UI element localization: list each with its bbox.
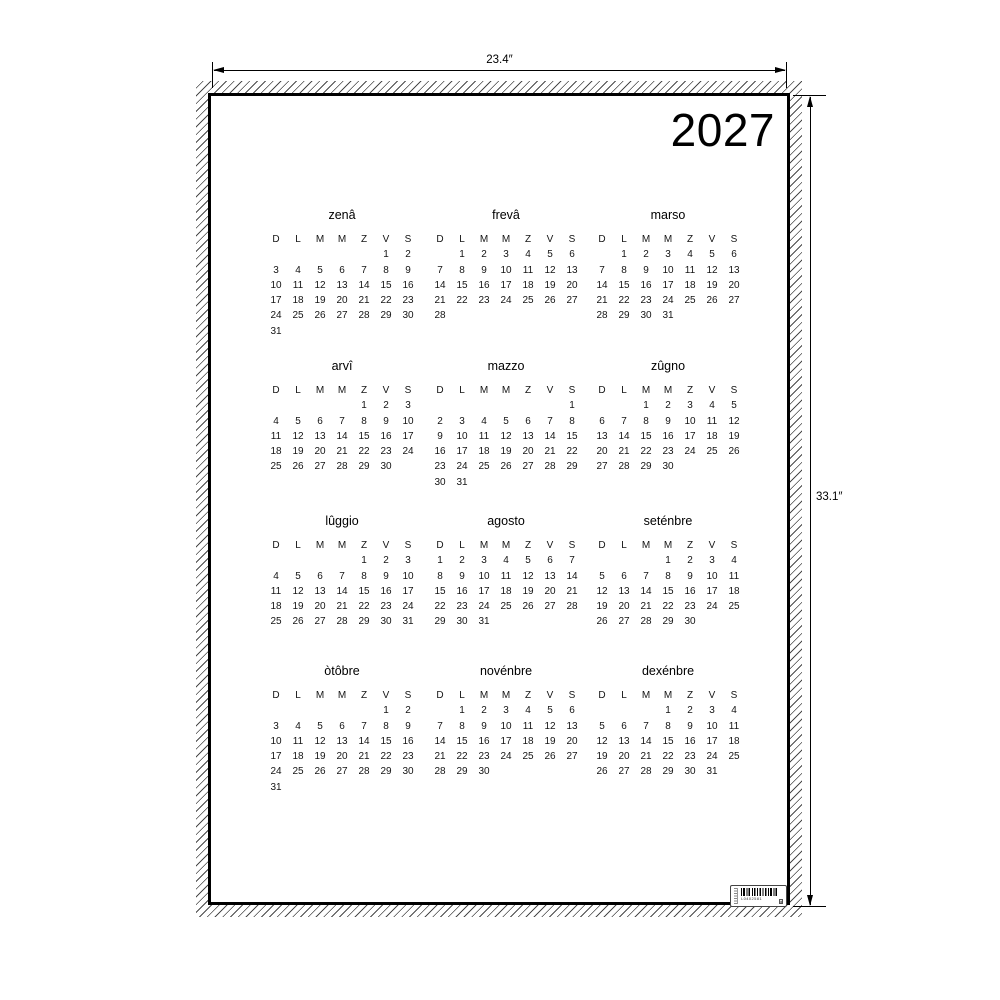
day-cell: 31 bbox=[451, 475, 473, 490]
day-cell: 11 bbox=[679, 263, 701, 278]
day-cell: 24 bbox=[701, 599, 723, 614]
day-cell: 15 bbox=[375, 278, 397, 293]
day-cell: 21 bbox=[429, 293, 451, 308]
weekday-header: Z bbox=[679, 538, 701, 553]
weekday-header: V bbox=[701, 688, 723, 703]
day-cell: 15 bbox=[375, 734, 397, 749]
empty-day-cell bbox=[473, 398, 495, 413]
weekday-header: M bbox=[657, 538, 679, 553]
day-cell: 12 bbox=[309, 734, 331, 749]
day-cell: 31 bbox=[701, 764, 723, 779]
weekday-header: D bbox=[429, 538, 451, 553]
day-cell: 7 bbox=[353, 263, 375, 278]
day-cell: 26 bbox=[287, 459, 309, 474]
day-cell: 23 bbox=[429, 459, 451, 474]
empty-day-cell bbox=[331, 553, 353, 568]
day-cell: 6 bbox=[539, 553, 561, 568]
month-grid: DLMMZVS123456789101112131415161718192021… bbox=[591, 538, 745, 630]
day-cell: 9 bbox=[429, 429, 451, 444]
weekday-header: Z bbox=[517, 688, 539, 703]
weekday-header: Z bbox=[679, 688, 701, 703]
day-cell: 20 bbox=[561, 734, 583, 749]
day-cell: 18 bbox=[495, 584, 517, 599]
day-cell: 10 bbox=[701, 569, 723, 584]
weekday-header: S bbox=[397, 538, 419, 553]
day-cell: 19 bbox=[723, 429, 745, 444]
barcode-stripes-icon bbox=[741, 888, 779, 896]
day-cell: 16 bbox=[679, 734, 701, 749]
month-block-9: seténbreDLMMZVS1234567891011121314151617… bbox=[591, 514, 745, 630]
day-cell: 11 bbox=[517, 263, 539, 278]
day-cell: 6 bbox=[613, 719, 635, 734]
day-cell: 9 bbox=[657, 414, 679, 429]
weekday-header: L bbox=[287, 538, 309, 553]
day-cell: 3 bbox=[701, 703, 723, 718]
day-cell: 9 bbox=[397, 263, 419, 278]
day-cell: 4 bbox=[287, 263, 309, 278]
weekday-header: M bbox=[473, 688, 495, 703]
day-cell: 30 bbox=[635, 308, 657, 323]
empty-day-cell bbox=[309, 703, 331, 718]
day-cell: 10 bbox=[397, 569, 419, 584]
day-cell: 2 bbox=[635, 247, 657, 262]
day-cell: 24 bbox=[265, 764, 287, 779]
day-cell: 5 bbox=[517, 553, 539, 568]
day-cell: 22 bbox=[657, 599, 679, 614]
day-cell: 18 bbox=[679, 278, 701, 293]
month-title: frevâ bbox=[429, 208, 583, 222]
day-cell: 24 bbox=[451, 459, 473, 474]
day-cell: 17 bbox=[397, 429, 419, 444]
day-cell: 19 bbox=[591, 749, 613, 764]
empty-day-cell bbox=[287, 247, 309, 262]
day-cell: 20 bbox=[591, 444, 613, 459]
month-title: lûggio bbox=[265, 514, 419, 528]
day-cell: 2 bbox=[375, 553, 397, 568]
day-cell: 30 bbox=[397, 764, 419, 779]
day-cell: 26 bbox=[539, 293, 561, 308]
month-title: agosto bbox=[429, 514, 583, 528]
day-cell: 9 bbox=[679, 569, 701, 584]
day-cell: 10 bbox=[679, 414, 701, 429]
day-cell: 26 bbox=[309, 764, 331, 779]
day-cell: 20 bbox=[309, 599, 331, 614]
month-grid: DLMMZVS123456789101112131415161718192021… bbox=[265, 383, 419, 475]
day-cell: 15 bbox=[657, 584, 679, 599]
day-cell: 14 bbox=[353, 734, 375, 749]
day-cell: 22 bbox=[451, 293, 473, 308]
day-cell: 17 bbox=[473, 584, 495, 599]
day-cell: 1 bbox=[353, 553, 375, 568]
weekday-header: D bbox=[429, 232, 451, 247]
day-cell: 8 bbox=[451, 719, 473, 734]
day-cell: 7 bbox=[353, 719, 375, 734]
day-cell: 11 bbox=[287, 734, 309, 749]
day-cell: 19 bbox=[517, 584, 539, 599]
dim-arrow-right-icon bbox=[775, 67, 786, 73]
day-cell: 30 bbox=[451, 614, 473, 629]
weekday-header: M bbox=[495, 383, 517, 398]
weekday-header: V bbox=[539, 232, 561, 247]
day-cell: 14 bbox=[591, 278, 613, 293]
day-cell: 2 bbox=[375, 398, 397, 413]
day-cell: 22 bbox=[561, 444, 583, 459]
width-dimension-label: 23.4″ bbox=[213, 54, 786, 66]
day-cell: 5 bbox=[539, 247, 561, 262]
day-cell: 5 bbox=[539, 703, 561, 718]
day-cell: 16 bbox=[397, 278, 419, 293]
day-cell: 18 bbox=[723, 734, 745, 749]
empty-day-cell bbox=[451, 398, 473, 413]
day-cell: 2 bbox=[679, 553, 701, 568]
day-cell: 18 bbox=[287, 293, 309, 308]
day-cell: 12 bbox=[287, 584, 309, 599]
day-cell: 15 bbox=[635, 429, 657, 444]
weekday-header: V bbox=[539, 538, 561, 553]
day-cell: 9 bbox=[375, 569, 397, 584]
day-cell: 22 bbox=[451, 749, 473, 764]
day-cell: 3 bbox=[495, 247, 517, 262]
empty-day-cell bbox=[353, 247, 375, 262]
empty-day-cell bbox=[309, 553, 331, 568]
empty-day-cell bbox=[613, 703, 635, 718]
weekday-header: Z bbox=[353, 383, 375, 398]
day-cell: 27 bbox=[517, 459, 539, 474]
day-cell: 4 bbox=[679, 247, 701, 262]
month-grid: DLMMZVS123456789101112131415161718192021… bbox=[429, 538, 583, 630]
day-cell: 15 bbox=[353, 429, 375, 444]
weekday-header: S bbox=[561, 688, 583, 703]
weekday-header: V bbox=[701, 232, 723, 247]
day-cell: 6 bbox=[517, 414, 539, 429]
day-cell: 28 bbox=[429, 764, 451, 779]
month-block-10: òtôbreDLMMZVS123456789101112131415161718… bbox=[265, 664, 419, 795]
day-cell: 12 bbox=[517, 569, 539, 584]
weekday-header: M bbox=[495, 538, 517, 553]
weekday-header: S bbox=[723, 538, 745, 553]
day-cell: 18 bbox=[517, 734, 539, 749]
weekday-header: S bbox=[723, 688, 745, 703]
day-cell: 24 bbox=[265, 308, 287, 323]
day-cell: 13 bbox=[331, 278, 353, 293]
weekday-header: S bbox=[723, 383, 745, 398]
day-cell: 17 bbox=[701, 734, 723, 749]
day-cell: 14 bbox=[331, 429, 353, 444]
day-cell: 27 bbox=[309, 459, 331, 474]
day-cell: 6 bbox=[723, 247, 745, 262]
day-cell: 29 bbox=[657, 764, 679, 779]
barcode-code-text: L0402581 bbox=[741, 896, 779, 901]
weekday-header: L bbox=[613, 383, 635, 398]
day-cell: 15 bbox=[451, 278, 473, 293]
weekday-header: M bbox=[635, 232, 657, 247]
empty-day-cell bbox=[613, 553, 635, 568]
empty-day-cell bbox=[265, 553, 287, 568]
day-cell: 23 bbox=[473, 749, 495, 764]
day-cell: 29 bbox=[375, 308, 397, 323]
empty-day-cell bbox=[591, 553, 613, 568]
empty-day-cell bbox=[265, 398, 287, 413]
weekday-header: M bbox=[309, 383, 331, 398]
weekday-header: D bbox=[265, 232, 287, 247]
day-cell: 27 bbox=[309, 614, 331, 629]
day-cell: 1 bbox=[657, 553, 679, 568]
day-cell: 6 bbox=[331, 263, 353, 278]
day-cell: 21 bbox=[613, 444, 635, 459]
day-cell: 4 bbox=[287, 719, 309, 734]
day-cell: 29 bbox=[657, 614, 679, 629]
day-cell: 2 bbox=[657, 398, 679, 413]
empty-day-cell bbox=[309, 398, 331, 413]
day-cell: 25 bbox=[265, 614, 287, 629]
month-grid: DLMMZVS123456789101112131415161718192021… bbox=[265, 538, 419, 630]
day-cell: 7 bbox=[613, 414, 635, 429]
day-cell: 3 bbox=[451, 414, 473, 429]
day-cell: 11 bbox=[287, 278, 309, 293]
dim-arrow-left-icon bbox=[213, 67, 224, 73]
day-cell: 24 bbox=[397, 599, 419, 614]
day-cell: 17 bbox=[495, 278, 517, 293]
day-cell: 14 bbox=[635, 734, 657, 749]
day-cell: 13 bbox=[561, 719, 583, 734]
day-cell: 3 bbox=[679, 398, 701, 413]
day-cell: 18 bbox=[723, 584, 745, 599]
day-cell: 7 bbox=[429, 263, 451, 278]
barcode-label: L0402581 ▮ bbox=[730, 885, 787, 907]
day-cell: 4 bbox=[265, 414, 287, 429]
day-cell: 2 bbox=[473, 703, 495, 718]
weekday-header: Z bbox=[353, 688, 375, 703]
day-cell: 25 bbox=[265, 459, 287, 474]
day-cell: 5 bbox=[309, 719, 331, 734]
day-cell: 31 bbox=[657, 308, 679, 323]
day-cell: 3 bbox=[265, 719, 287, 734]
day-cell: 2 bbox=[397, 247, 419, 262]
day-cell: 11 bbox=[723, 569, 745, 584]
weekday-header: S bbox=[723, 232, 745, 247]
day-cell: 15 bbox=[429, 584, 451, 599]
day-cell: 30 bbox=[679, 614, 701, 629]
month-grid: DLMMZVS123456789101112131415161718192021… bbox=[591, 688, 745, 780]
day-cell: 12 bbox=[539, 263, 561, 278]
day-cell: 12 bbox=[701, 263, 723, 278]
day-cell: 15 bbox=[451, 734, 473, 749]
empty-day-cell bbox=[635, 703, 657, 718]
day-cell: 19 bbox=[309, 749, 331, 764]
day-cell: 12 bbox=[591, 584, 613, 599]
weekday-header: V bbox=[375, 383, 397, 398]
day-cell: 14 bbox=[429, 734, 451, 749]
day-cell: 21 bbox=[561, 584, 583, 599]
day-cell: 28 bbox=[353, 764, 375, 779]
day-cell: 6 bbox=[309, 569, 331, 584]
day-cell: 18 bbox=[517, 278, 539, 293]
weekday-header: Z bbox=[517, 232, 539, 247]
day-cell: 13 bbox=[591, 429, 613, 444]
day-cell: 4 bbox=[517, 247, 539, 262]
day-cell: 5 bbox=[723, 398, 745, 413]
month-block-8: agostoDLMMZVS123456789101112131415161718… bbox=[429, 514, 583, 630]
day-cell: 10 bbox=[495, 263, 517, 278]
day-cell: 11 bbox=[265, 584, 287, 599]
day-cell: 31 bbox=[265, 324, 287, 339]
day-cell: 1 bbox=[375, 247, 397, 262]
barcode-symbol-box-icon: ▮ bbox=[779, 899, 783, 904]
day-cell: 16 bbox=[429, 444, 451, 459]
empty-day-cell bbox=[287, 703, 309, 718]
weekday-header: S bbox=[561, 232, 583, 247]
day-cell: 17 bbox=[701, 584, 723, 599]
day-cell: 3 bbox=[657, 247, 679, 262]
day-cell: 16 bbox=[375, 584, 397, 599]
weekday-header: Z bbox=[353, 232, 375, 247]
day-cell: 8 bbox=[635, 414, 657, 429]
barcode-main: L0402581 bbox=[741, 888, 779, 904]
day-cell: 29 bbox=[451, 764, 473, 779]
day-cell: 10 bbox=[397, 414, 419, 429]
month-grid: DLMMZVS123456789101112131415161718192021… bbox=[265, 232, 419, 339]
dim-extension-bottom bbox=[793, 906, 826, 907]
day-cell: 18 bbox=[287, 749, 309, 764]
day-cell: 29 bbox=[353, 459, 375, 474]
month-block-6: zûgnoDLMMZVS1234567891011121314151617181… bbox=[591, 359, 745, 475]
day-cell: 6 bbox=[331, 719, 353, 734]
day-cell: 23 bbox=[635, 293, 657, 308]
day-cell: 20 bbox=[613, 599, 635, 614]
day-cell: 7 bbox=[331, 414, 353, 429]
day-cell: 29 bbox=[561, 459, 583, 474]
height-dimension-line bbox=[810, 97, 811, 905]
empty-day-cell bbox=[591, 703, 613, 718]
day-cell: 30 bbox=[657, 459, 679, 474]
day-cell: 14 bbox=[429, 278, 451, 293]
day-cell: 28 bbox=[613, 459, 635, 474]
day-cell: 11 bbox=[495, 569, 517, 584]
weekday-header: M bbox=[635, 383, 657, 398]
day-cell: 10 bbox=[451, 429, 473, 444]
height-dimension-label: 33.1″ bbox=[816, 491, 842, 503]
day-cell: 18 bbox=[265, 444, 287, 459]
day-cell: 26 bbox=[539, 749, 561, 764]
month-title: zûgno bbox=[591, 359, 745, 373]
day-cell: 1 bbox=[613, 247, 635, 262]
day-cell: 23 bbox=[397, 293, 419, 308]
day-cell: 1 bbox=[353, 398, 375, 413]
weekday-header: D bbox=[429, 383, 451, 398]
weekday-header: M bbox=[473, 232, 495, 247]
day-cell: 27 bbox=[561, 749, 583, 764]
day-cell: 26 bbox=[591, 614, 613, 629]
day-cell: 8 bbox=[657, 569, 679, 584]
day-cell: 5 bbox=[309, 263, 331, 278]
day-cell: 7 bbox=[635, 569, 657, 584]
weekday-header: S bbox=[561, 383, 583, 398]
month-title: arvî bbox=[265, 359, 419, 373]
day-cell: 21 bbox=[591, 293, 613, 308]
day-cell: 30 bbox=[397, 308, 419, 323]
month-title: seténbre bbox=[591, 514, 745, 528]
day-cell: 9 bbox=[473, 719, 495, 734]
day-cell: 4 bbox=[495, 553, 517, 568]
month-block-7: lûggioDLMMZVS123456789101112131415161718… bbox=[265, 514, 419, 630]
day-cell: 22 bbox=[613, 293, 635, 308]
day-cell: 27 bbox=[561, 293, 583, 308]
day-cell: 24 bbox=[679, 444, 701, 459]
day-cell: 28 bbox=[561, 599, 583, 614]
day-cell: 10 bbox=[657, 263, 679, 278]
day-cell: 27 bbox=[591, 459, 613, 474]
day-cell: 7 bbox=[429, 719, 451, 734]
day-cell: 26 bbox=[495, 459, 517, 474]
day-cell: 10 bbox=[265, 734, 287, 749]
weekday-header: V bbox=[375, 232, 397, 247]
weekday-header: Z bbox=[353, 538, 375, 553]
day-cell: 25 bbox=[287, 308, 309, 323]
day-cell: 11 bbox=[473, 429, 495, 444]
weekday-header: M bbox=[635, 688, 657, 703]
day-cell: 3 bbox=[701, 553, 723, 568]
day-cell: 6 bbox=[309, 414, 331, 429]
weekday-header: L bbox=[451, 232, 473, 247]
day-cell: 12 bbox=[287, 429, 309, 444]
day-cell: 16 bbox=[451, 584, 473, 599]
weekday-header: L bbox=[451, 688, 473, 703]
empty-day-cell bbox=[265, 247, 287, 262]
month-block-5: mazzoDLMMZVS1234567891011121314151617181… bbox=[429, 359, 583, 490]
day-cell: 28 bbox=[353, 308, 375, 323]
day-cell: 17 bbox=[495, 734, 517, 749]
day-cell: 1 bbox=[375, 703, 397, 718]
weekday-header: M bbox=[635, 538, 657, 553]
month-block-12: dexénbreDLMMZVS1234567891011121314151617… bbox=[591, 664, 745, 780]
weekday-header: M bbox=[495, 232, 517, 247]
day-cell: 23 bbox=[473, 293, 495, 308]
day-cell: 27 bbox=[539, 599, 561, 614]
day-cell: 30 bbox=[473, 764, 495, 779]
day-cell: 8 bbox=[353, 569, 375, 584]
day-cell: 22 bbox=[375, 293, 397, 308]
dim-arrow-up-icon bbox=[807, 96, 813, 107]
weekday-header: M bbox=[331, 383, 353, 398]
day-cell: 2 bbox=[679, 703, 701, 718]
day-cell: 29 bbox=[375, 764, 397, 779]
weekday-header: Z bbox=[679, 232, 701, 247]
day-cell: 19 bbox=[495, 444, 517, 459]
day-cell: 30 bbox=[679, 764, 701, 779]
day-cell: 25 bbox=[517, 293, 539, 308]
weekday-header: M bbox=[473, 538, 495, 553]
day-cell: 14 bbox=[331, 584, 353, 599]
weekday-header: S bbox=[397, 383, 419, 398]
weekday-header: L bbox=[613, 232, 635, 247]
day-cell: 30 bbox=[375, 614, 397, 629]
day-cell: 2 bbox=[429, 414, 451, 429]
day-cell: 24 bbox=[495, 293, 517, 308]
day-cell: 18 bbox=[265, 599, 287, 614]
day-cell: 10 bbox=[265, 278, 287, 293]
day-cell: 4 bbox=[473, 414, 495, 429]
day-cell: 6 bbox=[561, 703, 583, 718]
day-cell: 5 bbox=[287, 414, 309, 429]
day-cell: 13 bbox=[539, 569, 561, 584]
day-cell: 11 bbox=[265, 429, 287, 444]
day-cell: 23 bbox=[679, 599, 701, 614]
day-cell: 8 bbox=[353, 414, 375, 429]
day-cell: 26 bbox=[517, 599, 539, 614]
day-cell: 5 bbox=[287, 569, 309, 584]
day-cell: 27 bbox=[331, 308, 353, 323]
day-cell: 9 bbox=[451, 569, 473, 584]
